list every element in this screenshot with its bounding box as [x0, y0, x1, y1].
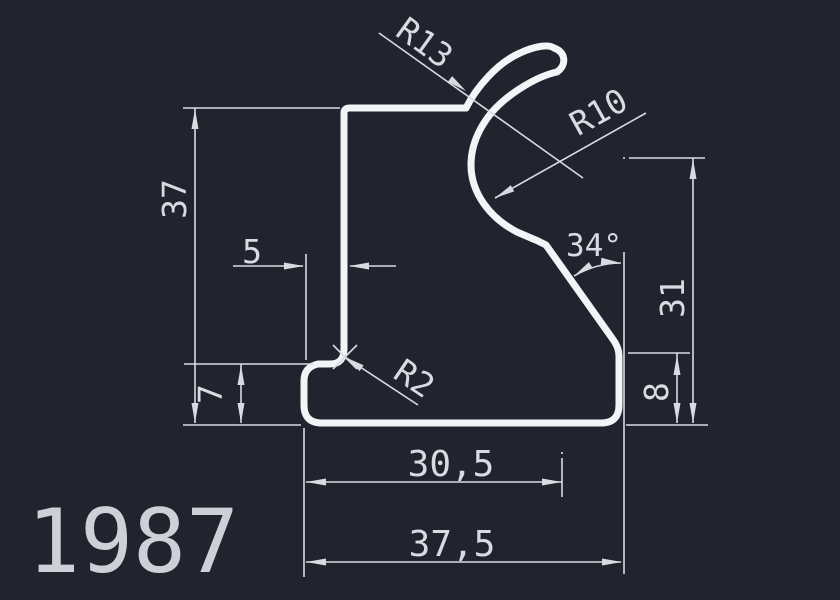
leader-hook-inner-radius-label: R10: [563, 80, 634, 143]
leader-hook-outer-radius-label: R13: [389, 9, 460, 76]
leader-hook-outer-radius: R13: [379, 9, 583, 178]
leader-hook-inner-radius: R10: [493, 80, 646, 201]
leader-hook-inner-radius-arrow: [493, 185, 514, 201]
dim-total-height-label: 37: [155, 179, 194, 219]
leader-fillet-radius: R2: [333, 345, 442, 406]
dim-step-offset-arrows: [284, 263, 369, 270]
dim-step-height-label: 7: [191, 384, 230, 404]
dim-slant-angle: 34°: [566, 228, 622, 279]
dim-step-offset: 5: [233, 232, 396, 360]
dim-step-height: 7: [184, 364, 314, 423]
dim-total-width-label: 37,5: [409, 524, 496, 565]
dim-foot-height: 8: [628, 353, 690, 423]
profile-drawing: 37 7 5 31 8: [0, 0, 840, 600]
leader-hook-inner-radius-line: [495, 113, 646, 198]
dim-inner-width-label: 30,5: [408, 444, 495, 485]
dim-right-height-label: 31: [653, 278, 692, 318]
dim-slant-angle-label: 34°: [566, 228, 622, 264]
dim-slant-angle-arrow-left: [572, 262, 593, 279]
leader-fillet-radius-label: R2: [387, 351, 442, 406]
profile-number: 1987: [27, 490, 239, 593]
dim-total-width: 37,5: [306, 252, 624, 574]
dim-foot-height-label: 8: [637, 382, 676, 402]
cad-canvas: 37 7 5 31 8: [0, 0, 840, 600]
dim-step-offset-label: 5: [242, 232, 262, 271]
